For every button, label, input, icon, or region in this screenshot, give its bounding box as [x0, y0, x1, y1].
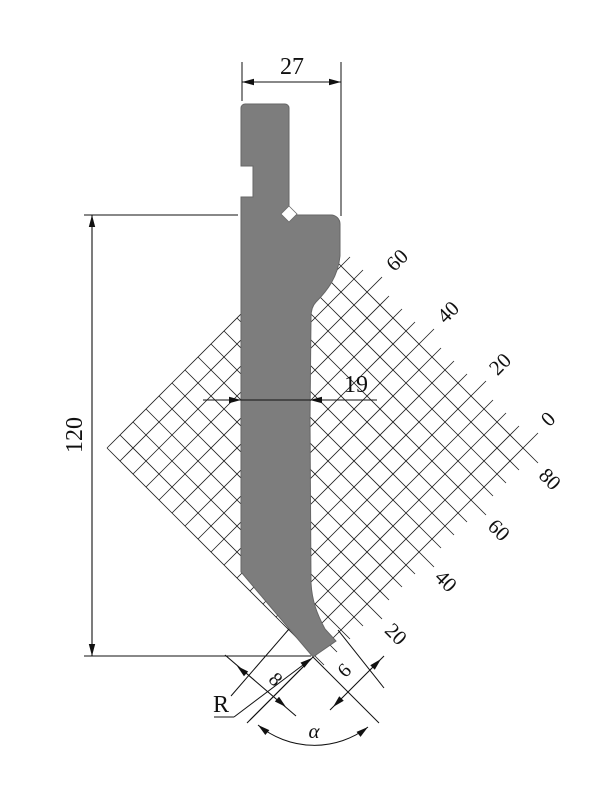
scale-label: 80 — [534, 463, 566, 495]
punch-drawing: 60 40 20 0 80 60 40 20 27 120 19 — [0, 0, 600, 800]
dim-blade-width-label: 19 — [344, 372, 368, 398]
arrowhead — [89, 644, 95, 656]
grid-line — [302, 426, 519, 643]
arrowhead — [256, 723, 269, 736]
arrowhead — [89, 215, 95, 227]
scale-label: 40 — [430, 565, 462, 597]
tip-annotations: 8 6 R α — [213, 629, 384, 745]
radius-label: R — [213, 692, 229, 718]
arrowhead — [310, 397, 322, 403]
grid-scale-upper-labels: 60 40 20 0 — [381, 244, 560, 431]
arrowhead — [329, 79, 341, 85]
dim-tip-right-label: 6 — [333, 659, 356, 682]
measurement-grid — [107, 231, 538, 665]
angle-label: α — [308, 719, 320, 743]
scale-label: 20 — [484, 348, 516, 380]
scale-label: 40 — [432, 296, 464, 328]
dim-total-height-label: 120 — [62, 417, 88, 453]
grid-line — [289, 413, 506, 630]
scale-label: 60 — [381, 244, 413, 276]
technical-drawing-canvas: 60 40 20 0 80 60 40 20 27 120 19 — [0, 0, 600, 800]
grid-line — [289, 266, 506, 483]
arrowhead — [357, 724, 370, 736]
arrowhead — [242, 79, 254, 85]
scale-label: 0 — [536, 407, 560, 431]
scale-label: 20 — [380, 618, 412, 650]
dim-top-width-label: 27 — [280, 54, 304, 80]
scale-label: 60 — [483, 514, 515, 546]
grid-scale-lower-labels: 80 60 40 20 — [380, 463, 566, 650]
